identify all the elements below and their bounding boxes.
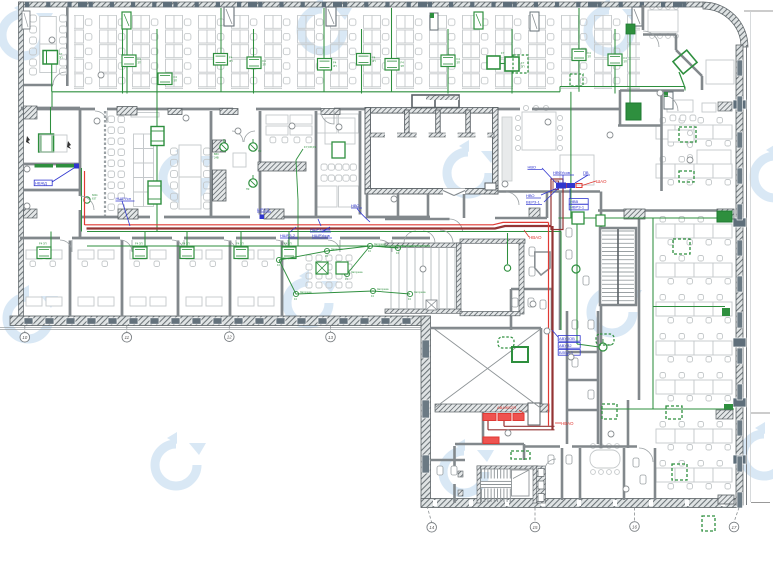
svg-text:3П: 3П [588, 55, 592, 59]
svg-text:НВЖД: НВЖД [35, 181, 47, 186]
svg-text:24В: 24В [214, 155, 219, 159]
svg-text:НВАО: НВАО [529, 235, 542, 240]
svg-text:13: 13 [328, 335, 334, 340]
svg-text:НШРУсрв: НШРУсрв [312, 233, 330, 238]
svg-text:3П: 3П [333, 64, 337, 68]
svg-text:11: 11 [124, 335, 129, 340]
svg-text:F4 3П: F4 3П [236, 242, 244, 246]
svg-text:ШАО: ШАО [596, 179, 607, 184]
svg-text:Заглушка: Заглушка [331, 247, 343, 251]
svg-text:ПК: ПК [246, 187, 250, 191]
svg-text:12: 12 [227, 335, 233, 340]
svg-text:НВО: НВО [528, 165, 537, 170]
svg-text:Заглушка: Заглушка [377, 287, 389, 291]
svg-text:3П: 3П [521, 65, 525, 69]
svg-text:3П: 3П [263, 63, 267, 67]
svg-text:НВО: НВО [351, 203, 360, 208]
svg-text:АВ4ЖБ2Я: АВ4ЖБ2Я [497, 405, 516, 410]
svg-text:F7: F7 [501, 51, 505, 55]
svg-text:F4 3П: F4 3П [182, 242, 190, 246]
svg-text:10: 10 [22, 335, 28, 340]
svg-text:НВВ: НВВ [570, 199, 579, 204]
svg-text:НШРЗ-2: НШРЗ-2 [280, 233, 296, 238]
svg-text:F7,F8,F9: F7,F8,F9 [304, 145, 317, 149]
svg-text:15: 15 [532, 525, 538, 530]
svg-text:НВФУсов: НВФУсов [553, 170, 570, 175]
svg-text:Заглушка: Заглушка [374, 242, 386, 246]
svg-text:НВО: НВО [526, 193, 535, 198]
svg-text:ПВ: ПВ [583, 170, 589, 175]
svg-text:3П: 3П [624, 60, 628, 64]
svg-text:НВАО: НВАО [561, 421, 574, 426]
svg-text:3П: 3П [229, 59, 233, 63]
svg-text:16: 16 [632, 524, 638, 529]
svg-text:600x: 600x [92, 193, 98, 197]
svg-text:Заглушка: Заглушка [414, 290, 426, 294]
svg-text:F4 3П: F4 3П [135, 242, 143, 246]
svg-text:ВЗС: ВЗС [214, 152, 219, 156]
svg-text:17: 17 [731, 525, 737, 530]
svg-text:ВЕРЗ-1: ВЕРЗ-1 [526, 200, 541, 205]
svg-text:3П: 3П [457, 61, 461, 65]
svg-text:НВРЗ-1: НВРЗ-1 [570, 205, 585, 210]
svg-text:НШРУсп: НШРУсп [116, 196, 132, 201]
svg-text:НШРУдилв: НШРУдилв [310, 227, 330, 232]
svg-text:14: 14 [429, 525, 435, 530]
svg-text:Заглушка: Заглушка [402, 244, 414, 248]
svg-text:F4 3П: F4 3П [284, 242, 292, 246]
svg-text:ШРЗ-2: ШРЗ-2 [257, 207, 270, 212]
svg-text:3П: 3П [138, 61, 142, 65]
svg-text:3П: 3П [372, 59, 376, 63]
svg-text:Заглушка: Заглушка [300, 290, 312, 294]
svg-text:3П: 3П [401, 64, 405, 68]
svg-text:F4 3П: F4 3П [39, 242, 47, 246]
svg-text:Заглушка: Заглушка [283, 256, 295, 260]
svg-text:3П: 3П [174, 79, 178, 83]
svg-text:Заглушка: Заглушка [351, 270, 363, 274]
svg-text:АВУЗОВ: АВУЗОВ [559, 336, 575, 341]
svg-text:3П: 3П [59, 56, 63, 60]
svg-text:637: 637 [92, 196, 97, 200]
svg-text:АВУВ2: АВУВ2 [559, 343, 572, 348]
svg-text:ПК: ПК [258, 149, 262, 153]
